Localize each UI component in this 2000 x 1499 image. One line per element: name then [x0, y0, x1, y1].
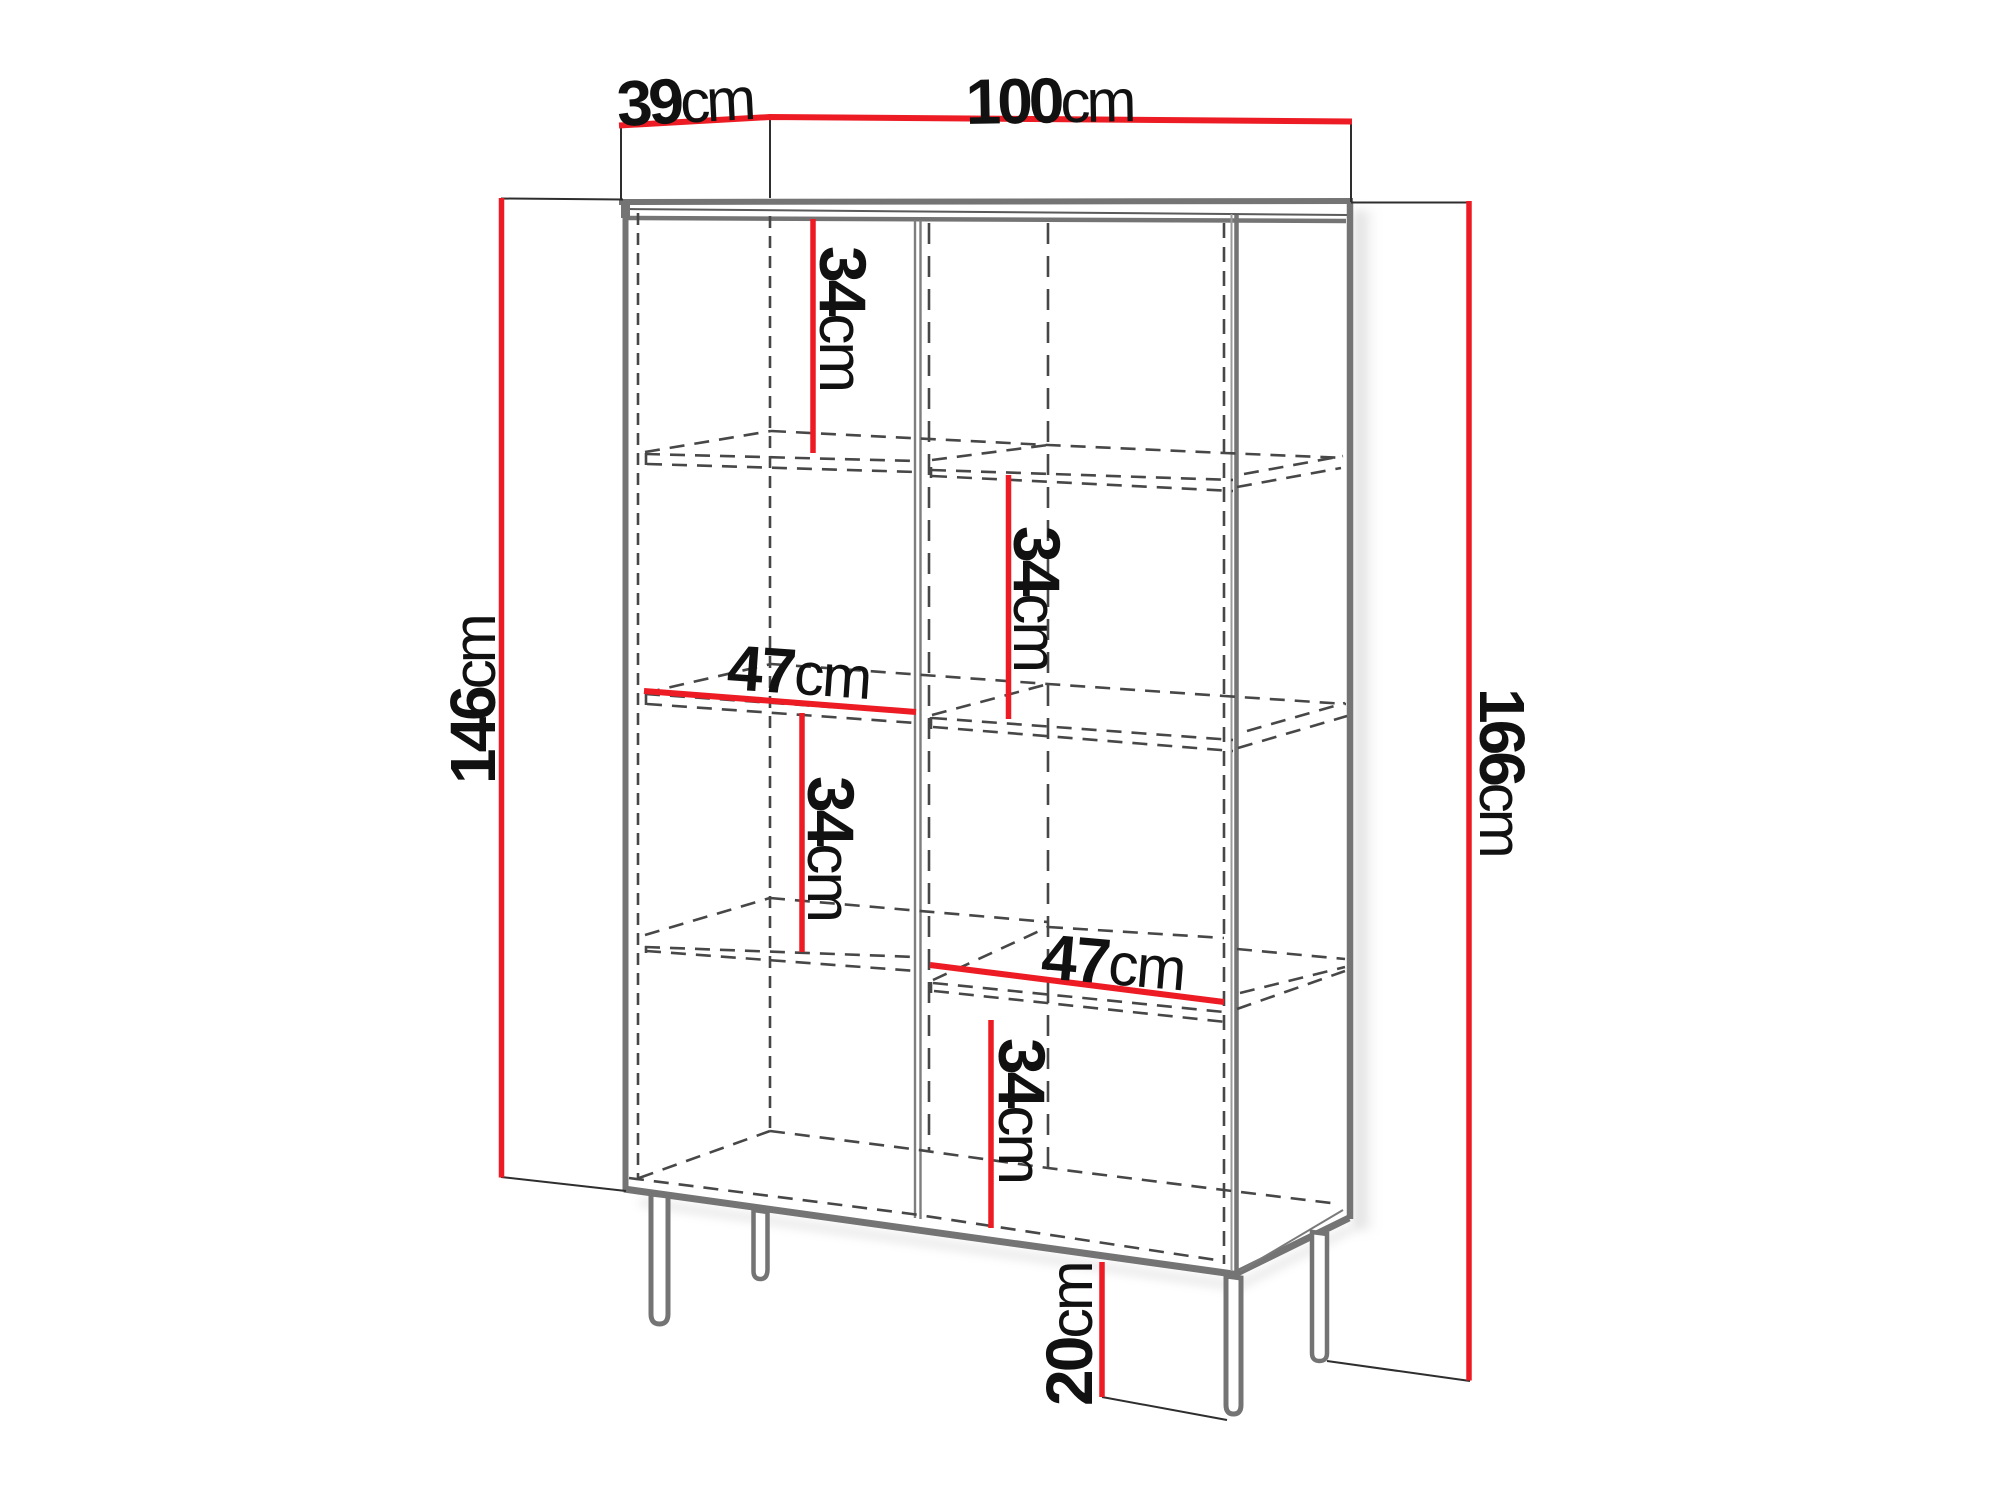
svg-text:34cm: 34cm [1000, 526, 1074, 670]
svg-text:20cm: 20cm [1032, 1263, 1106, 1406]
svg-text:34cm: 34cm [794, 776, 868, 920]
svg-text:39cm: 39cm [615, 61, 755, 140]
svg-text:166cm: 166cm [1466, 688, 1538, 856]
svg-text:34cm: 34cm [806, 246, 880, 390]
svg-text:146cm: 146cm [437, 616, 509, 784]
svg-text:47cm: 47cm [725, 631, 873, 713]
svg-text:34cm: 34cm [985, 1038, 1059, 1182]
svg-text:100cm: 100cm [965, 63, 1134, 138]
